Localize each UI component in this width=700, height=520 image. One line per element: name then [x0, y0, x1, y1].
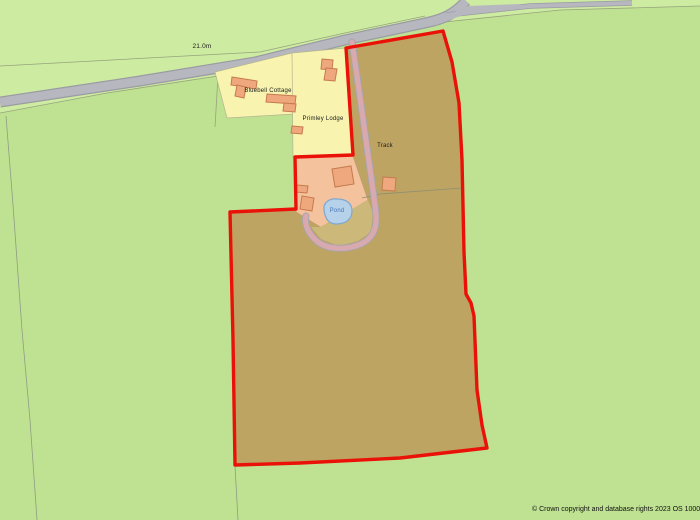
map-viewport: { "map": { "labels": { "spot_height": "2… [0, 0, 700, 520]
building-bluebell-second-leg [283, 103, 296, 112]
building-bluebell-wing [235, 85, 246, 98]
building-primley-outbuilding [291, 126, 303, 134]
pond-shape [324, 199, 352, 224]
building-courtyard-square [332, 166, 354, 187]
building-east-of-track [382, 177, 396, 191]
building-courtyard-small [296, 185, 308, 193]
building-bluebell-second-bar [266, 94, 296, 104]
building-courtyard-lower [300, 196, 314, 211]
map-canvas[interactable] [0, 0, 700, 520]
building-primley-stem [324, 68, 337, 81]
